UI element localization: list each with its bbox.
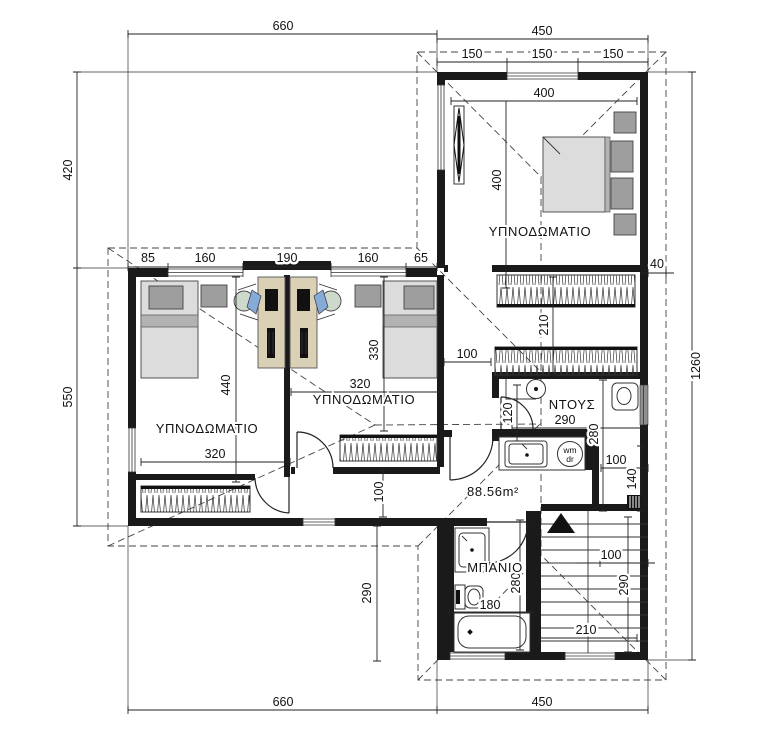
label-bedroom-b: ΥΠΝΟΔΩΜΑΤΙΟ [313, 392, 416, 407]
dim-corridor-100: 100 [372, 482, 386, 503]
label-bedroom-top: ΥΠΝΟΔΩΜΑΤΙΟ [489, 224, 592, 239]
nightstand [614, 112, 636, 133]
dim-wc-100: 100 [606, 453, 627, 467]
monitor [297, 289, 310, 311]
desk-station-a [234, 277, 285, 368]
dim-stairs-210: 210 [576, 623, 597, 637]
wardrobe-dressing-north [497, 275, 635, 307]
dim-150-c: 150 [603, 47, 624, 61]
dim-190: 190 [277, 251, 298, 265]
dim-stairs-290: 290 [617, 575, 631, 596]
dim-shower-120: 120 [501, 403, 515, 424]
bed-bedroom-a [141, 281, 227, 378]
dim-bedroom-a-320: 320 [205, 447, 226, 461]
nightstand [614, 214, 636, 235]
floor-plan: wm dr [0, 0, 780, 744]
dim-bedroom-400h: 400 [534, 86, 555, 100]
wardrobe-dressing-south [495, 347, 637, 375]
radiator [454, 106, 464, 184]
stairs-up-arrow [547, 513, 575, 533]
toilet [612, 383, 638, 410]
dim-bottom-660: 660 [273, 695, 294, 709]
dim-left-420: 420 [61, 160, 75, 181]
dim-right-1260: 1260 [689, 352, 703, 380]
dim-dressing-210: 210 [537, 315, 551, 336]
dim-bedroom-a-440: 440 [219, 375, 233, 396]
dim-bedroom-b-320: 320 [350, 377, 371, 391]
dim-shower-290: 290 [555, 413, 576, 427]
bedroom-b-door [297, 432, 333, 468]
bed-top-bedroom [543, 112, 636, 235]
label-bathroom: ΜΠΑΝΙΟ [467, 560, 523, 575]
monitor [265, 289, 278, 311]
wardrobe-bedroom-b [340, 435, 437, 461]
dim-160-b: 160 [358, 251, 379, 265]
dim-hall-100: 100 [457, 347, 478, 361]
floor-plan-drawing: wm dr [0, 0, 780, 744]
dim-left-290: 290 [360, 583, 374, 604]
dim-bath-180: 180 [480, 598, 501, 612]
dim-wc-140: 140 [625, 469, 639, 490]
nightstand [355, 285, 381, 307]
dim-wc-280: 280 [587, 424, 601, 445]
washer-label-bottom: dr [566, 454, 574, 464]
dim-left-550: 550 [61, 387, 75, 408]
bathroom-door [487, 522, 528, 563]
dim-160-a: 160 [195, 251, 216, 265]
hall-door [450, 437, 493, 480]
dim-85: 85 [141, 251, 155, 265]
label-area: 88.56m² [467, 484, 519, 499]
label-shower: ΝΤΟΥΣ [549, 397, 596, 412]
nightstand [201, 285, 227, 307]
wardrobe-corridor [141, 486, 250, 512]
counter: wm dr [499, 437, 585, 470]
doors [255, 397, 533, 563]
utility-grill [627, 495, 642, 509]
desk-station-b [290, 277, 341, 368]
dim-bath-280: 280 [509, 573, 523, 594]
bed-bedroom-b [355, 281, 437, 378]
dim-top-450: 450 [532, 24, 553, 38]
dim-bedroom-b-330: 330 [367, 340, 381, 361]
dim-stairs-100: 100 [601, 548, 622, 562]
dim-overhang-40: 40 [650, 257, 664, 271]
dim-bedroom-400v: 400 [490, 170, 504, 191]
dim-top-660: 660 [273, 19, 294, 33]
bathtub [454, 612, 530, 652]
dim-65: 65 [414, 251, 428, 265]
label-bedroom-a: ΥΠΝΟΔΩΜΑΤΙΟ [156, 421, 259, 436]
bedroom-a-door [255, 477, 289, 513]
dim-bottom-450: 450 [532, 695, 553, 709]
dim-150-b: 150 [532, 47, 553, 61]
dim-150-a: 150 [462, 47, 483, 61]
